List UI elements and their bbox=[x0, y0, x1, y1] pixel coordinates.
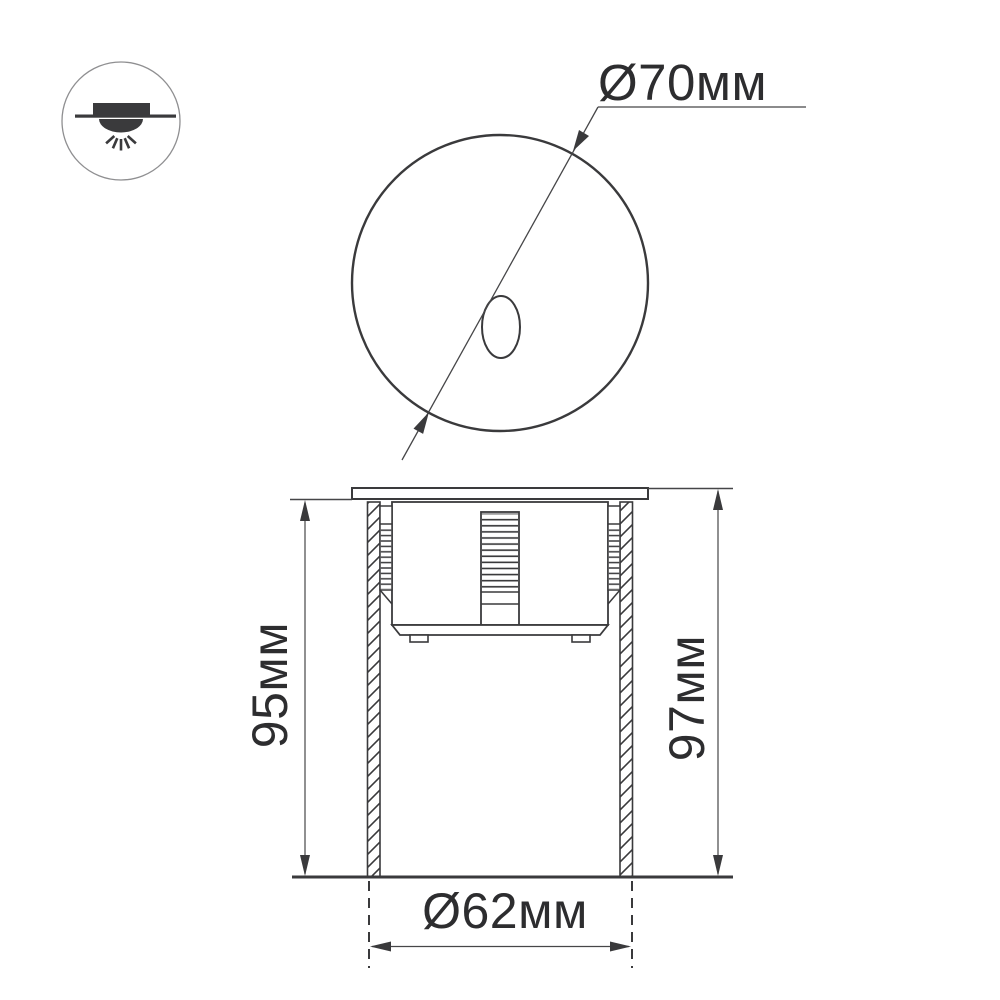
left-sleeve-wall bbox=[368, 502, 381, 877]
right-spring-strip bbox=[608, 506, 620, 604]
dimension-recess-depth: 95мм bbox=[242, 500, 352, 877]
technical-drawing: Ø70мм bbox=[0, 0, 1000, 1000]
right-sleeve-wall bbox=[620, 502, 633, 877]
recess-depth-label: 95мм bbox=[242, 622, 298, 748]
icon-light-rays bbox=[106, 136, 136, 151]
body-bottom-cap bbox=[392, 625, 608, 635]
icon-ceiling-line bbox=[75, 115, 176, 118]
icon-light-dome bbox=[99, 119, 143, 133]
dimension-overall-height: 97мм bbox=[648, 489, 733, 877]
right-foot bbox=[572, 635, 590, 642]
overall-height-label: 97мм bbox=[659, 635, 715, 761]
icon-housing bbox=[93, 103, 150, 116]
diameter-leader-line bbox=[402, 107, 598, 460]
arrowhead bbox=[610, 942, 631, 952]
left-foot bbox=[410, 635, 428, 642]
dimension-face-diameter: Ø70мм bbox=[402, 54, 806, 460]
arrowhead bbox=[300, 500, 310, 521]
arrowhead bbox=[713, 489, 723, 510]
cutout-diameter-label: Ø62мм bbox=[422, 883, 588, 939]
left-spring-strip bbox=[380, 506, 392, 604]
arrowhead bbox=[414, 412, 430, 434]
recessed-mount-downlight-icon bbox=[62, 62, 180, 180]
arrowhead bbox=[300, 855, 310, 876]
face-diameter-label: Ø70мм bbox=[598, 54, 767, 111]
arrowhead bbox=[370, 942, 391, 952]
dimension-cutout-diameter: Ø62мм bbox=[369, 881, 632, 968]
drawing-canvas: Ø70мм bbox=[0, 0, 1000, 1000]
trim-flange bbox=[352, 488, 648, 499]
heatsink-column bbox=[481, 512, 519, 625]
arrowhead bbox=[713, 855, 723, 876]
arrowhead bbox=[573, 130, 589, 151]
